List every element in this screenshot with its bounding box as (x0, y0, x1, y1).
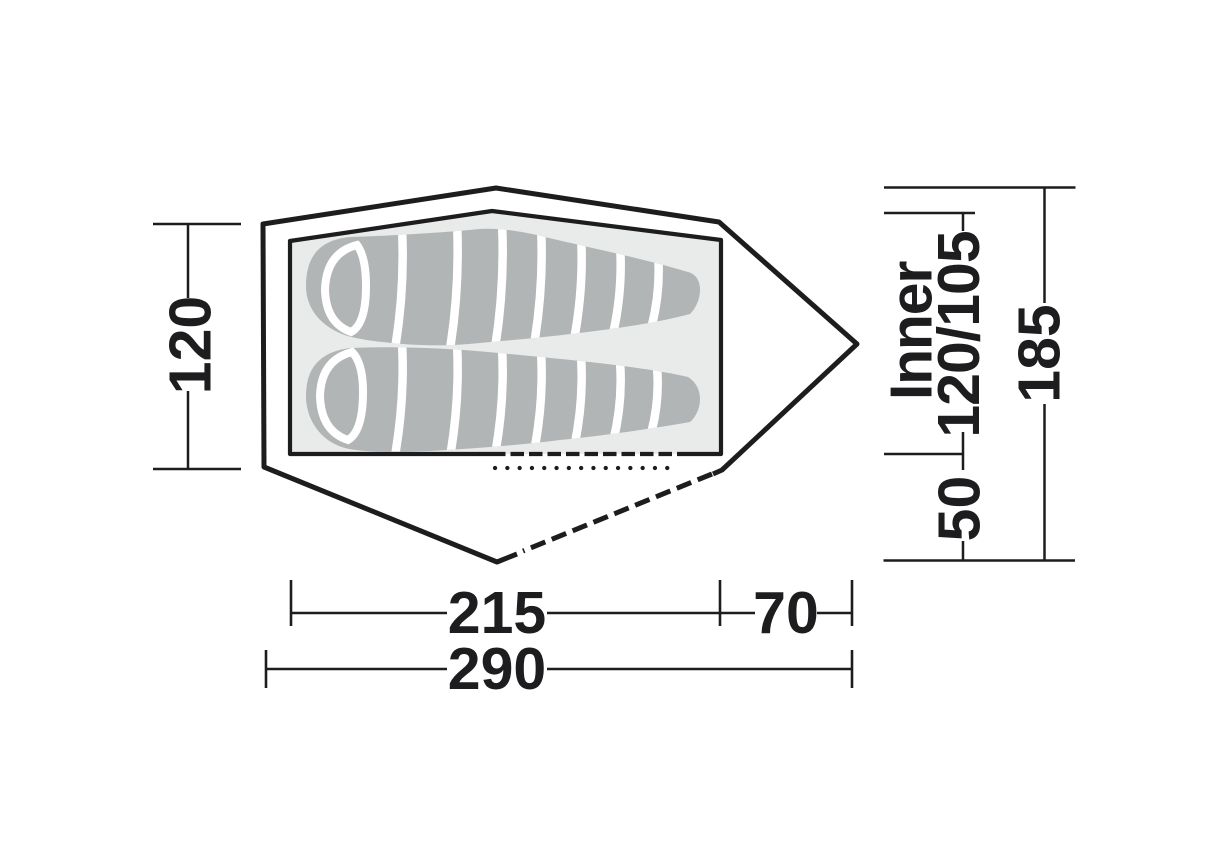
svg-text:50: 50 (927, 476, 993, 542)
svg-text:70: 70 (753, 580, 819, 646)
svg-text:290: 290 (448, 636, 546, 702)
svg-text:120: 120 (158, 296, 224, 394)
svg-text:185: 185 (1007, 304, 1073, 402)
svg-text:120/105: 120/105 (926, 231, 992, 437)
